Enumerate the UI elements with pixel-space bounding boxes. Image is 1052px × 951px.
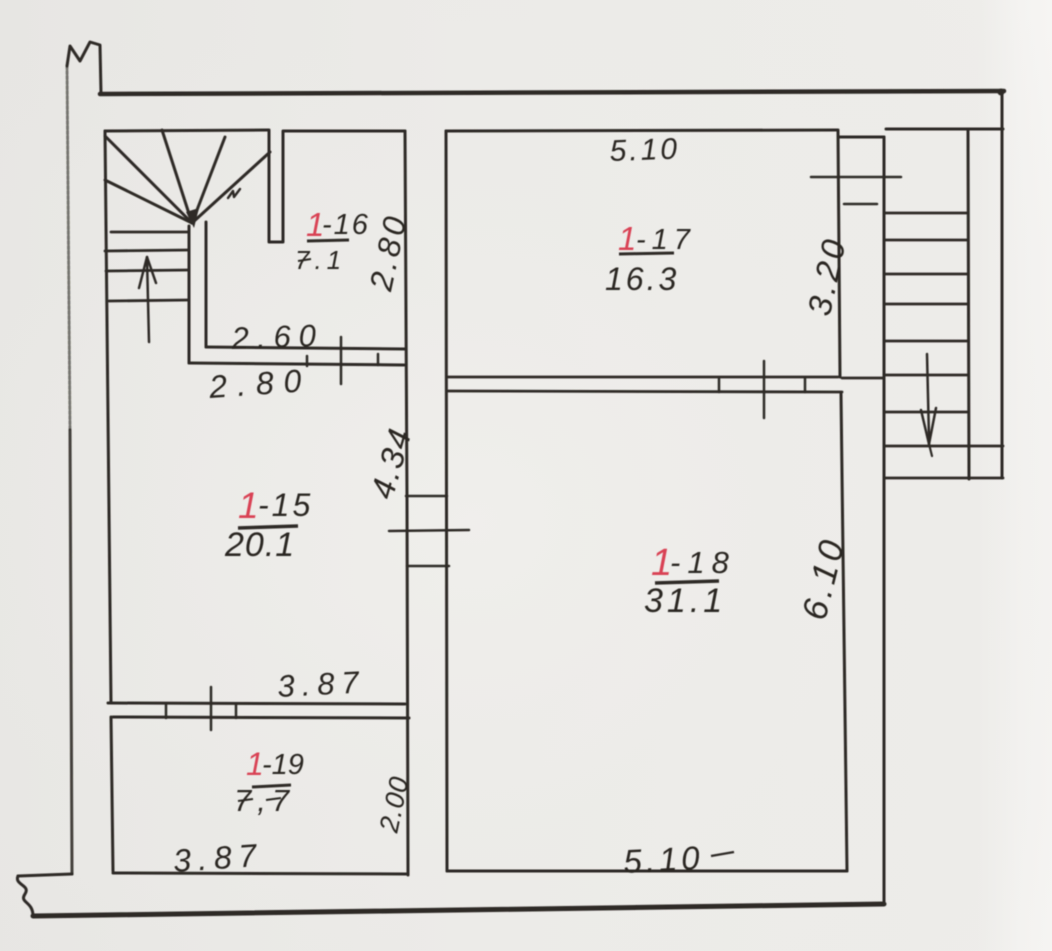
svg-text:16.3: 16.3 bbox=[605, 261, 679, 297]
svg-text:-18: -18 bbox=[670, 545, 736, 580]
svg-text:5.10: 5.10 bbox=[622, 839, 704, 880]
svg-text:5.10: 5.10 bbox=[609, 133, 680, 168]
svg-text:-15: -15 bbox=[258, 487, 313, 523]
svg-text:1: 1 bbox=[618, 220, 636, 257]
svg-text:-16: -16 bbox=[322, 209, 370, 241]
svg-text:1: 1 bbox=[238, 485, 259, 526]
svg-text:2.60: 2.60 bbox=[230, 318, 325, 356]
svg-text:3.87: 3.87 bbox=[172, 837, 265, 879]
svg-text:31.1: 31.1 bbox=[644, 582, 726, 620]
svg-text:1: 1 bbox=[651, 542, 672, 584]
svg-text:20.1: 20.1 bbox=[224, 526, 295, 564]
svg-text:2.80: 2.80 bbox=[207, 362, 313, 405]
svg-text:3.87: 3.87 bbox=[277, 664, 367, 704]
svg-text:-19: -19 bbox=[262, 749, 304, 781]
svg-text:-17: -17 bbox=[636, 224, 696, 256]
